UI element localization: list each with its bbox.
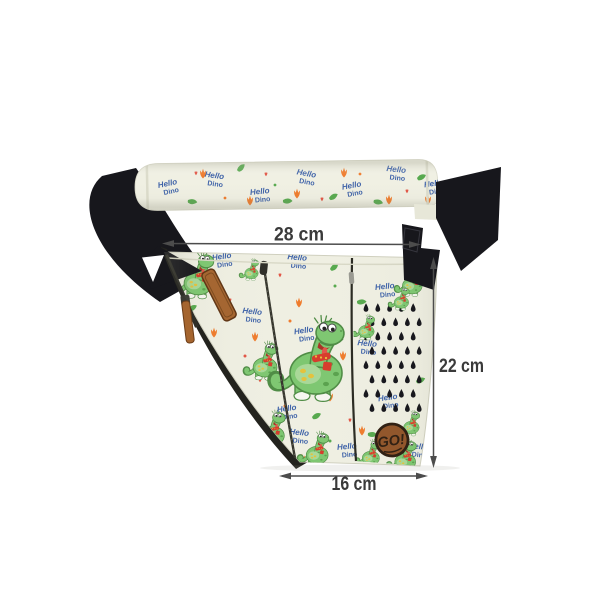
svg-text:16 cm: 16 cm xyxy=(332,473,377,495)
svg-text:22 cm: 22 cm xyxy=(439,355,484,377)
svg-text:28 cm: 28 cm xyxy=(274,224,324,246)
